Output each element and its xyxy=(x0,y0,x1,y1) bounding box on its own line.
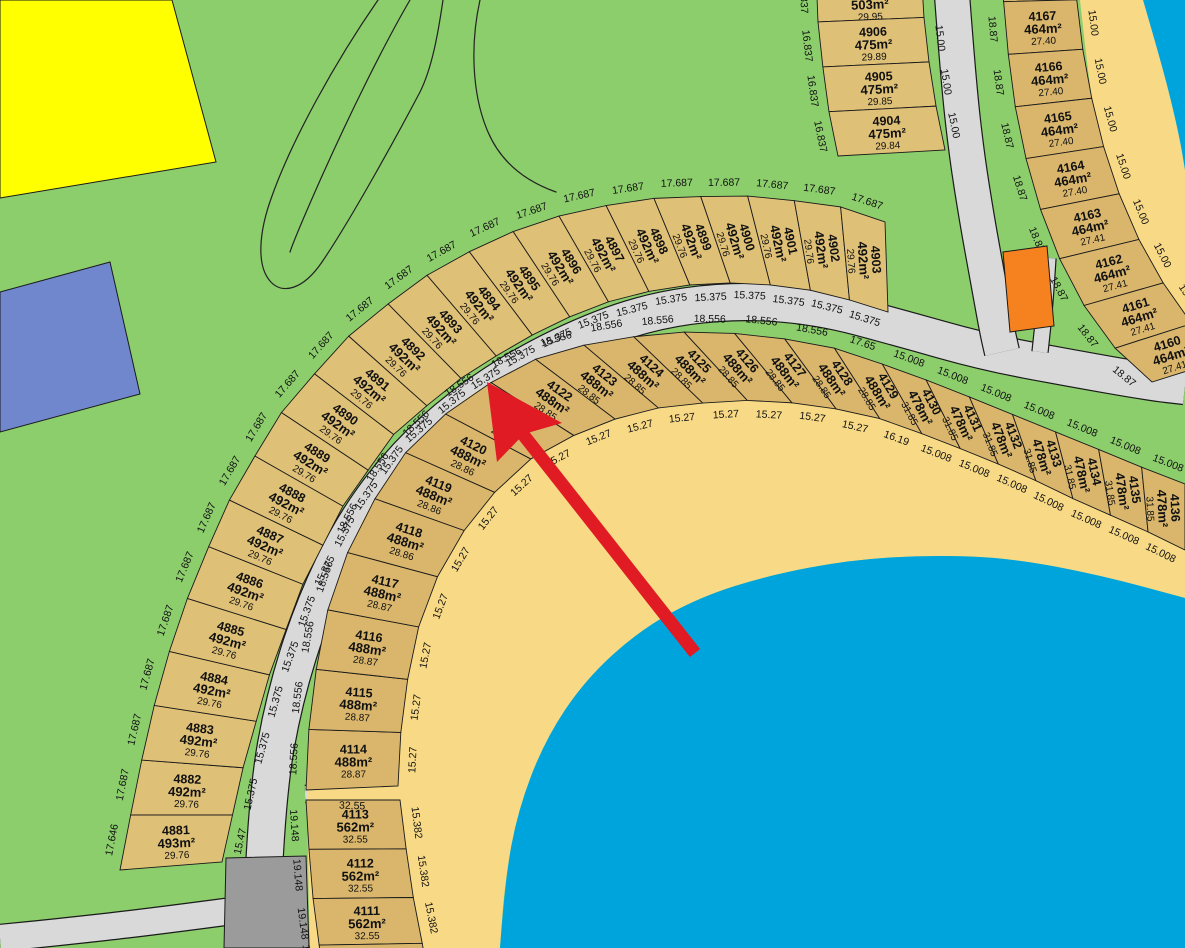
lot-length-dimension: 27.40 xyxy=(1031,36,1057,48)
lot-4904: 4904475m²29.84 xyxy=(829,106,945,156)
lot-4111: 4111562m²32.55 xyxy=(313,897,422,945)
lot-area: 464m² xyxy=(1024,20,1063,37)
edge-dimension-label: 18.556 xyxy=(287,743,301,776)
lot-4112: 4112562m²32.55 xyxy=(309,849,413,899)
edge-dimension-label: 15.27 xyxy=(756,408,783,421)
edge-dimension-label: 19.148 xyxy=(287,809,301,842)
lot-length-dimension: 27.40 xyxy=(1038,86,1064,99)
lot-area: 503m² xyxy=(851,0,890,13)
lot-area: 488m² xyxy=(335,754,373,769)
lot-length-dimension: 29.76 xyxy=(174,799,200,811)
lot-area: 475m² xyxy=(868,125,907,142)
edge-dimension-label: 15.375 xyxy=(694,291,727,305)
subdivision-plan-map: 4881493m²29.7617.64615.474882492m²29.761… xyxy=(0,0,1185,948)
lot-area: 562m² xyxy=(336,819,374,834)
orange-building xyxy=(1003,246,1054,332)
lot-length-dimension: 29.76 xyxy=(164,850,190,862)
lot-4906: 4906475m²29.89 xyxy=(818,17,929,66)
lot-4166: 4166464m²27.40 xyxy=(1008,49,1091,107)
subdivision-plan-canvas: 4881493m²29.7617.64615.474882492m²29.761… xyxy=(0,0,1185,948)
lot-4881: 4881493m²29.76 xyxy=(120,815,233,870)
edge-dimension-label: 18.87 xyxy=(985,16,999,43)
lot-area: 562m² xyxy=(342,868,380,883)
lot-4905: 4905475m²29.85 xyxy=(823,62,936,112)
lot-length-dimension: 32.55 xyxy=(343,835,368,846)
lot-4115: 4115488m²28.87 xyxy=(309,669,408,732)
lot-length-dimension: 31.85 xyxy=(1143,496,1155,522)
lot-length-dimension: 29.85 xyxy=(867,96,893,108)
lot-area: 493m² xyxy=(157,835,196,852)
lot-length-dimension: 29.76 xyxy=(844,248,857,274)
lot-area: 492m² xyxy=(168,784,207,800)
edge-dimension-label: 17.687 xyxy=(708,177,740,189)
lot-length-dimension: 28.87 xyxy=(344,712,370,725)
lot-area: 478m² xyxy=(1154,489,1171,528)
edge-dimension-label: 18.556 xyxy=(694,313,727,326)
lot-length-dimension: 32.55 xyxy=(348,883,374,894)
edge-dimension-label: 17.687 xyxy=(661,177,694,190)
edge-dimension-label: 15.27 xyxy=(406,746,419,773)
edge-dimension-label: 16.837 xyxy=(797,0,810,14)
lot-length-dimension: 28.87 xyxy=(341,769,367,780)
edge-dimension-label: 15.375 xyxy=(733,289,766,303)
lot-area: 492m² xyxy=(855,241,872,280)
lot-length-dimension: 29.84 xyxy=(875,140,901,152)
lot-4882: 4882492m²29.76 xyxy=(131,760,243,815)
lot-area: 475m² xyxy=(854,36,893,53)
lot-length-dimension: 32.55 xyxy=(355,931,381,942)
lot-4114: 4114488m²28.87 xyxy=(306,729,401,790)
lot-area: 562m² xyxy=(348,916,386,932)
lot-4167: 4167464m²27.40 xyxy=(1004,0,1083,54)
extra-dimension-label: 32.55 xyxy=(339,800,366,813)
lot-length-dimension: 29.89 xyxy=(861,51,887,63)
lot-area: 475m² xyxy=(860,81,899,98)
edge-dimension-label: 15.27 xyxy=(712,408,739,422)
